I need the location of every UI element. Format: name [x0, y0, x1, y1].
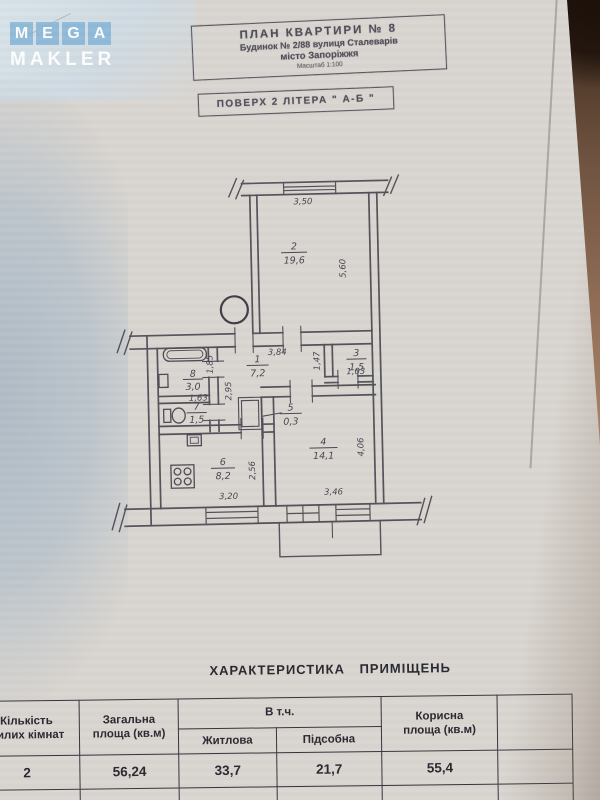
paper-shade-right: [0, 0, 600, 800]
photo-of-document: M E G A MAKLER ПЛАН КВАРТИРИ № 8 Будинок…: [0, 0, 600, 800]
document-paper: M E G A MAKLER ПЛАН КВАРТИРИ № 8 Будинок…: [0, 0, 600, 800]
